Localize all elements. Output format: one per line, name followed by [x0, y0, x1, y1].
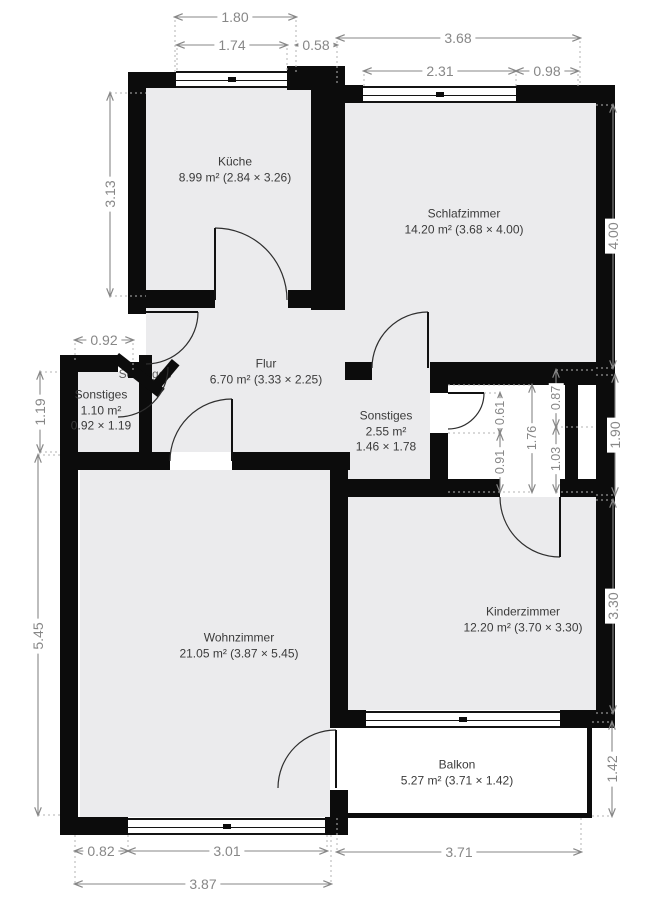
dim-label: 1.74 — [214, 37, 249, 53]
room-name: Sonstiges — [356, 409, 416, 425]
dim-label: 0.91 — [493, 447, 508, 477]
dim-label: 0.87 — [549, 383, 564, 413]
room-area: 14.20 m² (3.68 × 4.00) — [404, 222, 523, 238]
room-label-sonstiges1: Sonstiges 1.10 m² 0.92 × 1.19 — [71, 388, 131, 435]
dim-label: 1.42 — [604, 751, 620, 786]
door-leaves — [146, 228, 560, 788]
room-label-balkon: Balkon 5.27 m² (3.71 × 1.42) — [401, 757, 513, 788]
room-label-kinderzimmer: Kinderzimmer 12.20 m² (3.70 × 3.30) — [463, 604, 582, 635]
dim-label: 0.58 — [298, 37, 333, 53]
dim-label: 4.00 — [605, 218, 621, 253]
room-area: 12.20 m² (3.70 × 3.30) — [463, 620, 582, 636]
room-label-schlafzimmer: Schlafzimmer 14.20 m² (3.68 × 4.00) — [404, 206, 523, 237]
dim-label: 3.71 — [441, 844, 476, 860]
dim-label: 1.76 — [525, 423, 540, 453]
dim-label: 5.45 — [30, 618, 46, 653]
room-area: 5.27 m² (3.71 × 1.42) — [401, 773, 513, 789]
room-area: 8.99 m² (2.84 × 3.26) — [179, 170, 291, 186]
room-name: Balkon — [401, 757, 513, 773]
room-name: Wohnzimmer — [179, 630, 298, 646]
dim-label: 0.92 — [86, 332, 121, 348]
dim-label: 3.13 — [102, 176, 118, 211]
room-area: 21.05 m² (3.87 × 5.45) — [179, 646, 298, 662]
room-name: Küche — [179, 154, 291, 170]
floor-plan-canvas: Sonstiges — [0, 0, 662, 900]
dim-label: 1.19 — [32, 394, 48, 429]
room-area: 1.10 m² — [71, 403, 131, 419]
room-label-sonstiges2: Sonstiges 2.55 m² 1.46 × 1.78 — [356, 409, 416, 456]
room-dims: 1.46 × 1.78 — [356, 440, 416, 456]
room-dims: 0.92 × 1.19 — [71, 419, 131, 435]
room-area: 2.55 m² — [356, 424, 416, 440]
room-name: Schlafzimmer — [404, 206, 523, 222]
dim-label: 3.01 — [209, 843, 244, 859]
dim-label: 0.61 — [493, 398, 508, 428]
dim-label: 0.98 — [529, 63, 564, 79]
dim-label: 1.03 — [549, 444, 564, 474]
room-label-wohnzimmer: Wohnzimmer 21.05 m² (3.87 × 5.45) — [179, 630, 298, 661]
room-area: 6.70 m² (3.33 × 2.25) — [210, 372, 322, 388]
dim-label: 3.68 — [440, 30, 475, 46]
dim-label: 2.31 — [422, 63, 457, 79]
room-name: Sonstiges — [71, 388, 131, 404]
dim-label: 3.87 — [185, 876, 220, 892]
room-name: Kinderzimmer — [463, 604, 582, 620]
dim-label: 0.82 — [83, 843, 118, 859]
dim-label: 3.30 — [605, 588, 621, 623]
room-label-flur: Flur 6.70 m² (3.33 × 2.25) — [210, 356, 322, 387]
dim-label: 1.90 — [607, 417, 623, 452]
room-label-kueche: Küche 8.99 m² (2.84 × 3.26) — [179, 154, 291, 185]
room-name: Flur — [210, 356, 322, 372]
dim-label: 1.80 — [217, 9, 252, 25]
